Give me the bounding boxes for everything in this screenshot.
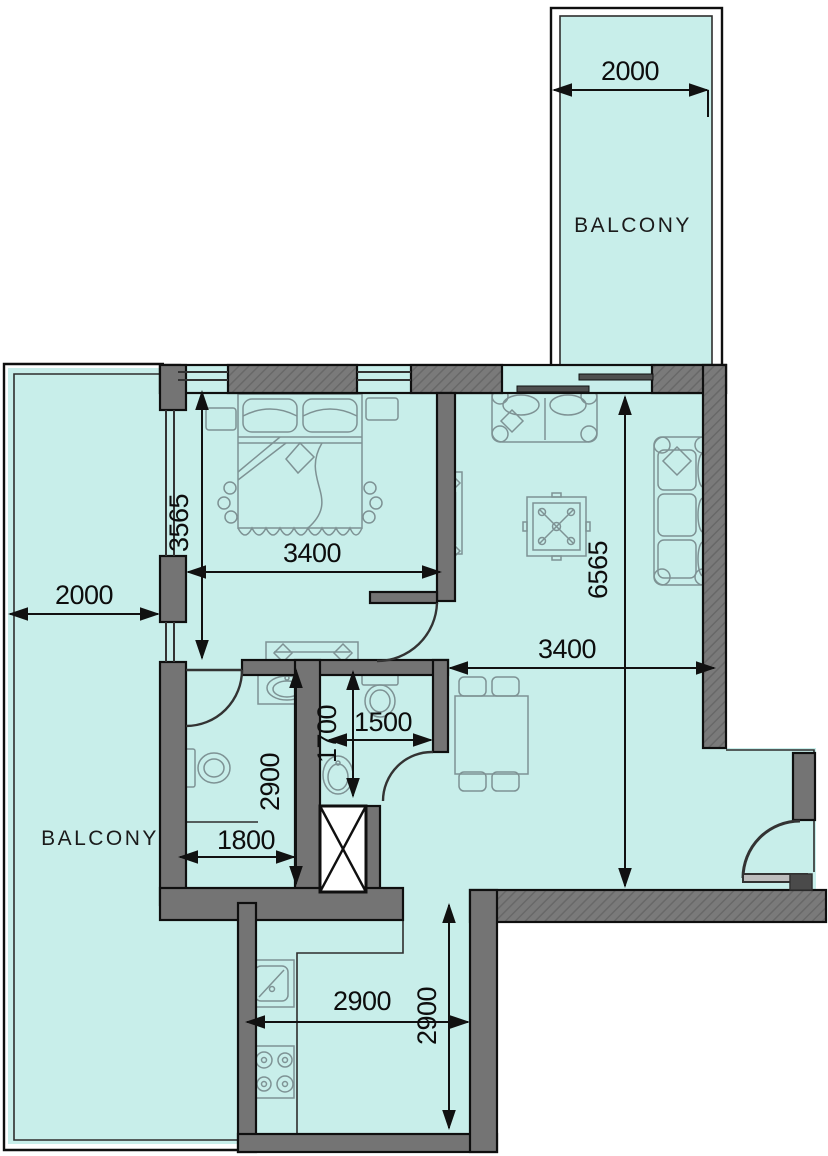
dim-bath-depth: 2900 [255,753,285,811]
dim-balcony-top: 2000 [601,56,659,86]
dim-living-width: 3400 [538,634,596,664]
dim-bedroom-depth: 3565 [164,494,194,552]
service-shaft [320,806,366,892]
wall-top-living-left [411,365,502,393]
dim-balcony-left: 2000 [55,580,113,610]
balcony-left-label: BALCONY [41,827,159,850]
wall-entry-jamb [793,753,815,820]
wall-bath-top [242,660,448,675]
wall-left-mid [160,556,186,622]
wall-living-right [703,365,726,748]
wall-kitchen-right [470,890,497,1152]
dim-bath-width: 1800 [217,825,275,855]
wall-top-bedroom [228,365,357,393]
wall-left-lower [160,662,186,905]
entrance-threshold [790,874,812,890]
dim-kitchen-depth: 2900 [412,987,442,1045]
dim-living-depth: 6565 [583,541,613,599]
dim-bedroom-width: 3400 [283,538,341,568]
wall-bedroom-entry-stub [370,592,437,603]
wall-shaft-east [366,806,380,892]
wall-bedroom-living [437,393,455,601]
dim-wc-depth: 1700 [312,705,342,763]
wall-wc-east [433,660,448,752]
balcony-top-label: BALCONY [574,214,692,237]
wall-kitchen-bottom [238,1134,497,1152]
floor-plan-page: 2000 2000 3565 3400 6565 3400 2900 1800 … [0,0,828,1156]
coffee-table [523,493,590,560]
floor-plan: 2000 2000 3565 3400 6565 3400 2900 1800 … [0,0,828,1156]
wall-bottom-band [470,890,826,922]
wall-kitchen-left [238,903,256,1152]
wall-bath-wc-partition [295,660,320,893]
dim-kitchen-width: 2900 [333,986,391,1016]
dim-wc-width: 1500 [354,707,412,737]
